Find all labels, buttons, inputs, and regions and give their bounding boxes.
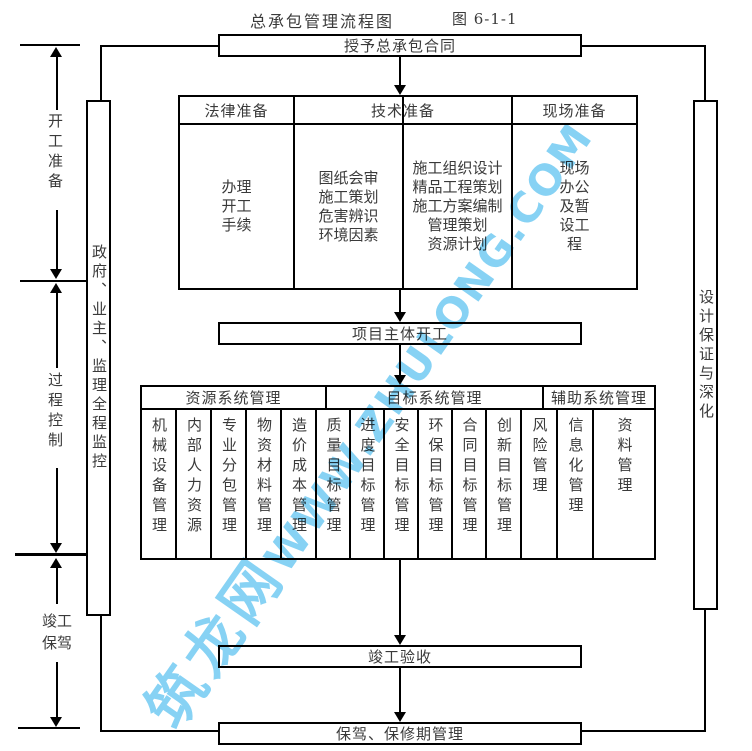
- mgmt-header-target: 目标系统管理: [327, 387, 544, 408]
- connector-line: [100, 45, 218, 47]
- page-title: 总承包管理流程图: [250, 8, 394, 32]
- dimension-tick: [20, 44, 80, 46]
- arrow-down-icon: [50, 717, 62, 727]
- arrow-down-icon: [394, 712, 406, 722]
- mgmt-col-information: 信息化管理: [558, 410, 594, 558]
- arrow-down-icon: [50, 269, 62, 279]
- mgmt-header-auxiliary: 辅助系统管理: [544, 387, 654, 408]
- flow-arrow-shaft: [399, 560, 401, 637]
- arrow-down-icon: [50, 543, 62, 553]
- connector-line: [704, 608, 706, 732]
- connector-line: [704, 45, 706, 100]
- mgmt-col-environment: 环保目标管理: [419, 410, 453, 558]
- connector-line: [100, 614, 102, 732]
- box-warranty-management: 保驾、保修期管理: [218, 722, 582, 745]
- box-completion-acceptance: 竣工验收: [218, 645, 582, 668]
- mgmt-col-machinery: 机械设备管理: [142, 410, 177, 558]
- arrow-down-icon: [394, 375, 406, 385]
- phase-label-process-control: 过程控制: [47, 372, 62, 456]
- left-supervision-label: 政府、业主、监理全程监控: [91, 244, 106, 472]
- box-project-start: 项目主体开工: [218, 322, 582, 345]
- mgmt-col-risk: 风险管理: [522, 410, 558, 558]
- connector-line: [100, 730, 218, 732]
- mgmt-col-safety: 安全目标管理: [385, 410, 419, 558]
- mgmt-header-resource: 资源系统管理: [142, 387, 327, 408]
- flow-arrow-shaft: [399, 290, 401, 314]
- prep-header-technical: 技术准备: [295, 97, 513, 123]
- connector-line: [100, 45, 102, 100]
- right-design-label: 设计保证与深化: [698, 289, 713, 422]
- dimension-line: [56, 56, 58, 110]
- management-table: 资源系统管理 目标系统管理 辅助系统管理 机械设备管理 内部人力资源 专业分包管…: [140, 385, 656, 560]
- arrow-down-icon: [394, 635, 406, 645]
- dimension-tick: [15, 553, 86, 556]
- preparation-table: 法律准备 技术准备 现场准备 办理 开工 手续 图纸会审 施工策划 危害辨识 环…: [178, 95, 638, 290]
- dimension-line: [56, 468, 58, 544]
- left-supervision-bar: 政府、业主、监理全程监控: [86, 100, 111, 616]
- phase-label-preparation: 开工准备: [47, 113, 62, 197]
- mgmt-col-subcontract: 专业分包管理: [212, 410, 247, 558]
- prep-technical-items-left: 图纸会审 施工策划 危害辨识 环境因素: [295, 125, 404, 288]
- connector-line: [582, 730, 706, 732]
- mgmt-col-materials: 物资材料管理: [247, 410, 282, 558]
- watermark-cn: 筑龙网: [132, 544, 298, 740]
- dimension-line: [56, 662, 58, 718]
- arrow-down-icon: [394, 85, 406, 95]
- mgmt-col-quality: 质量目标管理: [317, 410, 351, 558]
- dimension-line: [56, 567, 58, 604]
- prep-header-legal: 法律准备: [180, 97, 295, 123]
- mgmt-col-contract: 合同目标管理: [453, 410, 487, 558]
- arrow-down-icon: [394, 312, 406, 322]
- flow-arrow-shaft: [399, 57, 401, 87]
- mgmt-col-documents: 资料管理: [594, 410, 654, 558]
- dimension-tick: [20, 280, 86, 282]
- right-design-bar: 设计保证与深化: [693, 100, 718, 610]
- figure-number: 图 6-1-1: [452, 8, 518, 29]
- flow-arrow-shaft: [399, 345, 401, 377]
- phase-label-completion-escort: 竣工保驾: [36, 610, 78, 654]
- mgmt-col-innovation: 创新目标管理: [487, 410, 522, 558]
- dimension-tick: [18, 727, 80, 729]
- mgmt-col-cost: 造价成本管理: [282, 410, 317, 558]
- prep-header-site: 现场准备: [513, 97, 636, 123]
- prep-technical-items-right: 施工组织设计 精品工程策划 施工方案编制 管理策划 资源计划: [404, 125, 513, 288]
- box-award-contract: 授予总承包合同: [218, 34, 582, 57]
- prep-legal-items: 办理 开工 手续: [180, 125, 295, 288]
- flowchart-canvas: 总承包管理流程图 图 6-1-1 筑龙网WWW.ZHULONG.COM 授予总承…: [0, 0, 752, 751]
- dimension-line: [56, 292, 58, 368]
- mgmt-col-schedule: 进度目标管理: [351, 410, 385, 558]
- connector-line: [582, 45, 706, 47]
- mgmt-col-hr: 内部人力资源: [177, 410, 212, 558]
- flow-arrow-shaft: [399, 668, 401, 714]
- dimension-line: [56, 210, 58, 270]
- prep-site-items: 现场 办公 及暂 设工 程: [513, 125, 636, 288]
